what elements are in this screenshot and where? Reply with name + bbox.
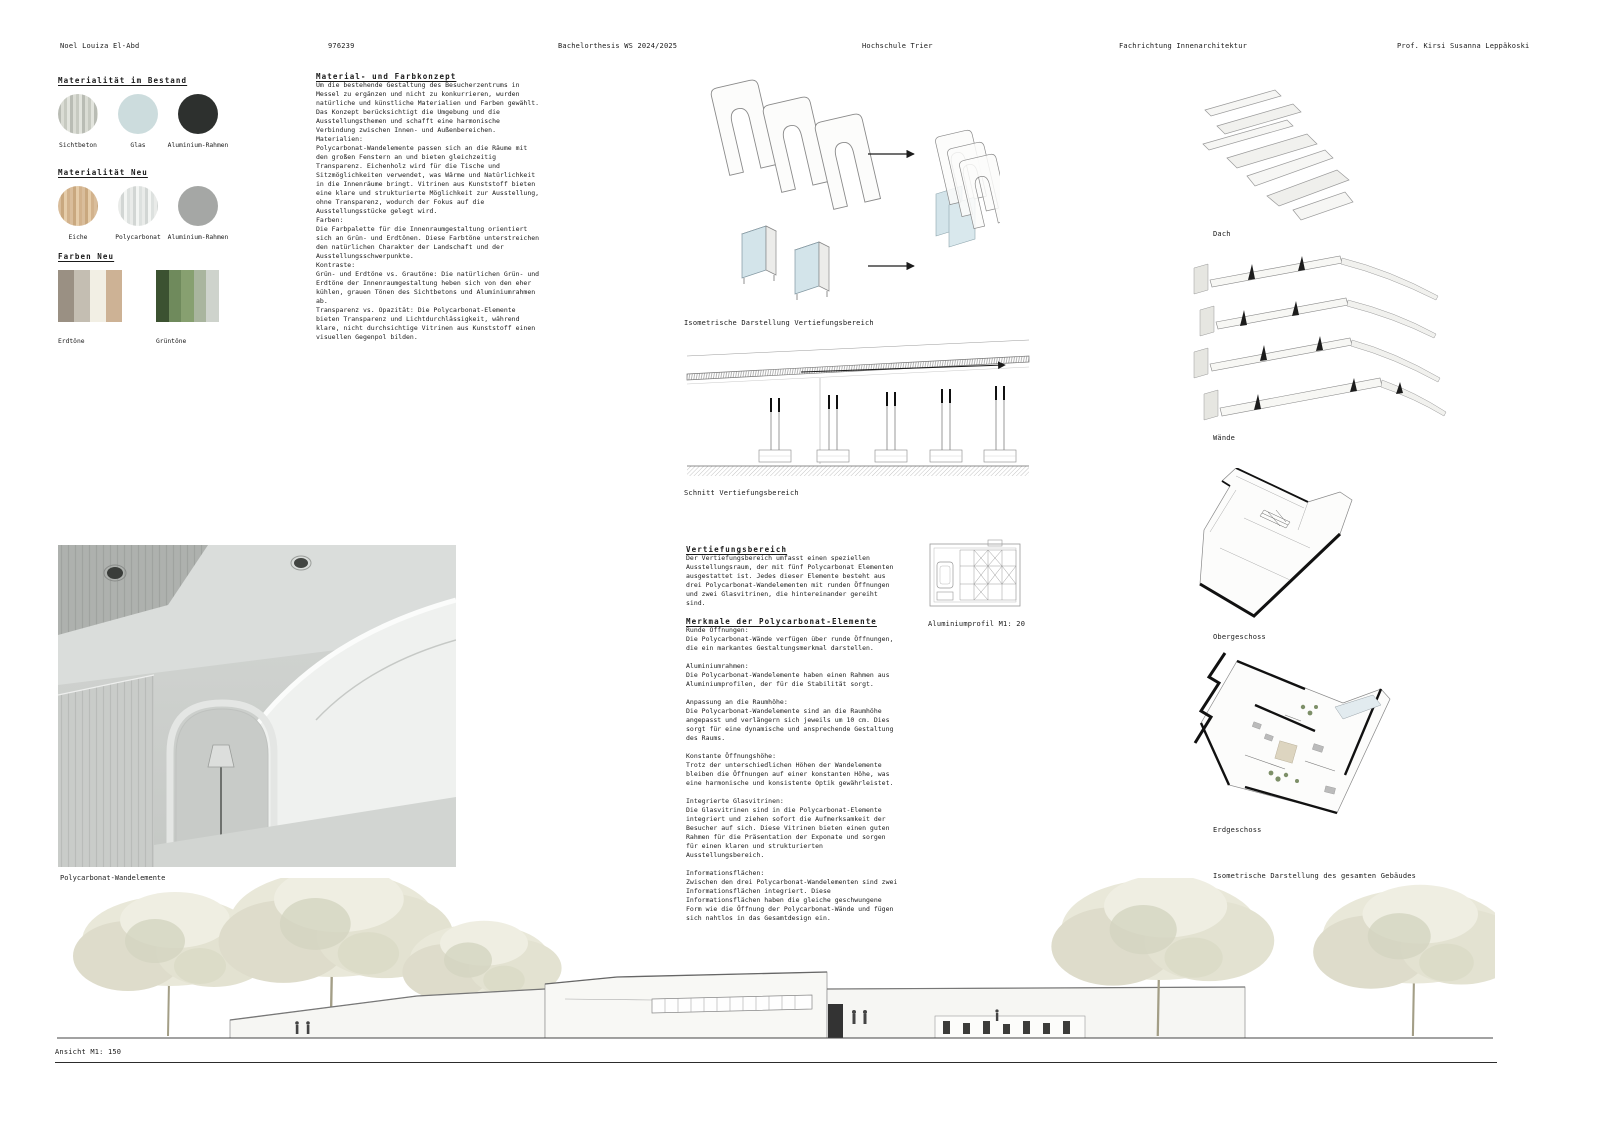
caption-obergeschoss: Obergeschoss <box>1213 633 1266 641</box>
vertiefung-item: Anpassung an die Raumhöhe: Die Polycarbo… <box>686 698 898 743</box>
vertiefung-item: Runde Öffnungen: Die Polycarbonat-Wände … <box>686 626 898 653</box>
polycarbonat-circle <box>118 186 158 226</box>
materialien-text: Polycarbonat-Wandelemente passen sich an… <box>316 144 540 216</box>
swatch-glas: Glas <box>108 94 168 149</box>
iso-vertiefung-drawing <box>690 76 1000 316</box>
elevation-drawing <box>55 878 1495 1042</box>
aluprofil-drawing <box>928 538 1024 612</box>
vertiefung-item: Aluminiumrahmen: Die Polycarbonat-Wandel… <box>686 662 898 689</box>
item-text: Die Polycarbonat-Wände verfügen über run… <box>686 635 898 653</box>
presentation-board: Noel Louiza El-Abd 976239 Bachelorthesis… <box>0 0 1600 1132</box>
vertiefung-heading: Vertiefungsbereich <box>686 545 898 554</box>
vertiefung-item: Konstante Öffnungshöhe: Trotz der unters… <box>686 752 898 788</box>
kontraste-text-2: Transparenz vs. Opazität: Die Polycarbon… <box>316 306 540 342</box>
palette-erdtoene <box>58 270 122 322</box>
item-text: Die Polycarbonat-Wandelemente sind an di… <box>686 707 898 743</box>
alu-bestand-circle <box>178 94 218 134</box>
item-text: Die Polycarbonat-Wandelemente haben eine… <box>686 671 898 689</box>
palette-label-gruentoene: Grüntöne <box>156 338 186 345</box>
erdgeschoss-drawing <box>1185 645 1395 830</box>
glas-circle <box>118 94 158 134</box>
caption-schnitt: Schnitt Vertiefungsbereich <box>684 489 799 497</box>
swatch-alu-neu: Aluminium-Rahmen <box>168 186 228 241</box>
kontraste-label: Kontraste: <box>316 261 540 270</box>
obergeschoss-drawing <box>1190 468 1360 623</box>
palette-gruentoene <box>156 270 219 322</box>
sichtbeton-circle <box>58 94 98 134</box>
swatch-eiche: Eiche <box>48 186 108 241</box>
item-label: Integrierte Glasvitrinen: <box>686 797 898 806</box>
schnitt-drawing <box>683 338 1033 484</box>
item-label: Informationsflächen: <box>686 869 898 878</box>
materialien-label: Materialien: <box>316 135 540 144</box>
item-label: Konstante Öffnungshöhe: <box>686 752 898 761</box>
heading-materialitaet-neu: Materialität Neu <box>58 168 148 177</box>
waende-drawing <box>1190 252 1450 430</box>
caption-iso-vertiefung: Isometrische Darstellung Vertiefungsbere… <box>684 319 874 327</box>
item-label: Aluminiumrahmen: <box>686 662 898 671</box>
swatch-polycarbonat: Polycarbonat <box>108 186 168 241</box>
matriculation-number: 976239 <box>328 42 355 50</box>
caption-aluprofil: Aluminiumprofil M1: 20 <box>928 620 1025 628</box>
swatch-label: Aluminium-Rahmen <box>168 142 229 149</box>
concept-text-column: Material- und Farbkonzept Um die bestehe… <box>316 72 540 342</box>
item-text: Die Glasvitrinen sind in die Polycarbona… <box>686 806 898 860</box>
farben-text: Die Farbpalette für die Innenraumgestalt… <box>316 225 540 261</box>
concept-heading: Material- und Farbkonzept <box>316 72 540 81</box>
heading-farben-neu: Farben Neu <box>58 252 114 261</box>
interior-render-photo <box>58 545 456 867</box>
author-name: Noel Louiza El-Abd <box>60 42 139 50</box>
thesis-title: Bachelorthesis WS 2024/2025 <box>558 42 677 50</box>
item-label: Anpassung an die Raumhöhe: <box>686 698 898 707</box>
swatch-label: Aluminium-Rahmen <box>168 234 229 241</box>
department-name: Fachrichtung Innenarchitektur <box>1119 42 1247 50</box>
alu-neu-circle <box>178 186 218 226</box>
dach-drawing <box>1195 80 1355 222</box>
caption-ansicht: Ansicht M1: 150 <box>55 1048 121 1056</box>
swatch-label: Eiche <box>69 234 88 241</box>
kontraste-text-1: Grün- und Erdtöne vs. Grautöne: Die natü… <box>316 270 540 306</box>
swatch-row-bestand: Sichtbeton Glas Aluminium-Rahmen <box>48 94 228 149</box>
swatch-row-neu: Eiche Polycarbonat Aluminium-Rahmen <box>48 186 228 241</box>
caption-erdgeschoss: Erdgeschoss <box>1213 826 1262 834</box>
swatch-sichtbeton: Sichtbeton <box>48 94 108 149</box>
palette-label-erdtoene: Erdtöne <box>58 338 85 345</box>
heading-materialitaet-bestand: Materialität im Bestand <box>58 76 187 85</box>
item-label: Runde Öffnungen: <box>686 626 898 635</box>
swatch-alu-bestand: Aluminium-Rahmen <box>168 94 228 149</box>
farben-label: Farben: <box>316 216 540 225</box>
swatch-label: Sichtbeton <box>59 142 97 149</box>
swatch-label: Polycarbonat <box>115 234 161 241</box>
caption-dach: Dach <box>1213 230 1231 238</box>
vertiefung-text-column: Vertiefungsbereich Der Vertiefungsbereic… <box>686 545 898 923</box>
school-name: Hochschule Trier <box>862 42 933 50</box>
concept-intro: Um die bestehende Gestaltung des Besuche… <box>316 81 540 135</box>
caption-waende: Wände <box>1213 434 1235 442</box>
item-text: Trotz der unterschiedlichen Höhen der Wa… <box>686 761 898 788</box>
professor-name: Prof. Kirsi Susanna Leppäkoski <box>1397 42 1529 50</box>
vertiefung-item: Integrierte Glasvitrinen: Die Glasvitrin… <box>686 797 898 860</box>
vertiefung-intro: Der Vertiefungsbereich umfasst einen spe… <box>686 554 898 608</box>
footer-divider <box>55 1062 1497 1063</box>
eiche-circle <box>58 186 98 226</box>
merkmale-heading: Merkmale der Polycarbonat-Elemente <box>686 617 898 626</box>
swatch-label: Glas <box>130 142 145 149</box>
